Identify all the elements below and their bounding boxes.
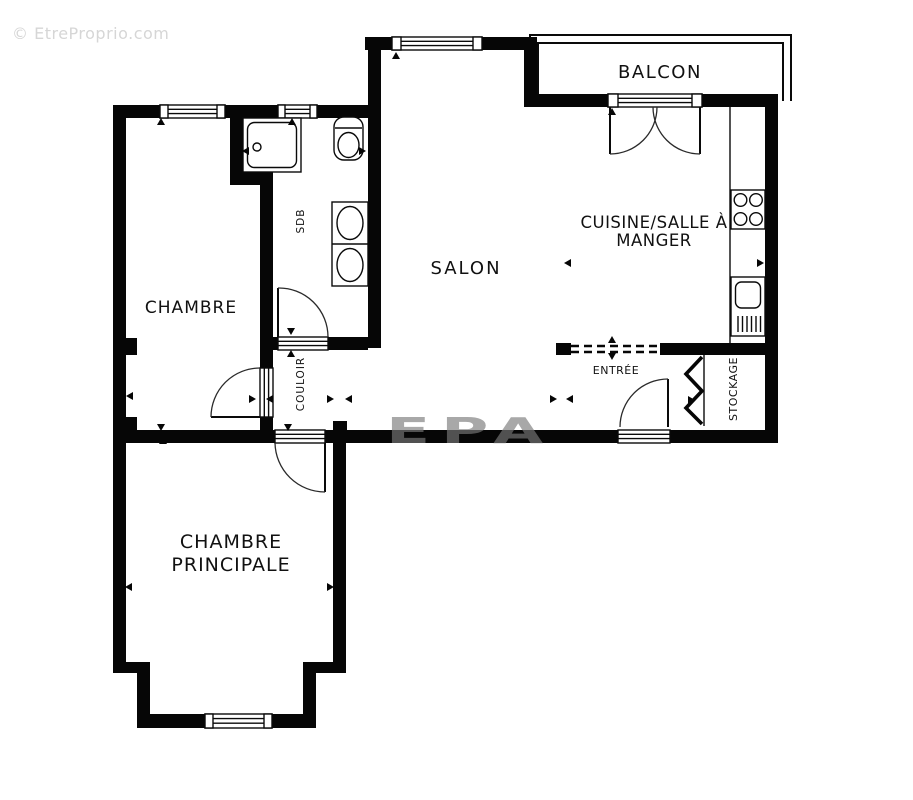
dimension-arrow	[345, 395, 352, 403]
wall-right	[765, 94, 778, 443]
balcon-label: BALCON	[618, 62, 702, 83]
windows	[160, 37, 482, 728]
wall-sdb-bottom-a	[260, 337, 278, 350]
walls	[113, 37, 778, 728]
wall-notch-lower	[126, 417, 137, 430]
dimension-arrow	[608, 336, 616, 343]
wall-top-kitchen-a	[524, 94, 608, 107]
dimension-arrow	[564, 259, 571, 267]
wall-bay-bottom-b	[272, 714, 316, 728]
wall-bay-bottom-a	[137, 714, 205, 728]
dimension-arrow	[157, 118, 165, 125]
center-watermark: EPA	[386, 411, 554, 452]
dimension-arrow	[608, 353, 616, 360]
wall-top-chambre-b	[225, 105, 278, 118]
dimension-arrow	[287, 350, 295, 357]
sdb-door-threshold	[278, 337, 328, 350]
stockage-label: STOCKAGE	[727, 357, 740, 421]
floor-plan: BALCON CUISINE/SALLE À MANGER SALON CHAM…	[0, 0, 913, 800]
wall-bottom-a	[113, 430, 275, 443]
dimension-arrow	[566, 395, 573, 403]
stockage-bifold-door	[686, 355, 704, 426]
chambre-principale-door-threshold	[275, 430, 325, 443]
wall-stub	[333, 421, 347, 430]
wall-sdb-salon	[368, 37, 381, 348]
dimension-arrow	[126, 392, 133, 400]
sdb-door	[278, 288, 328, 337]
wall-chambre-right-upper	[230, 118, 243, 180]
couloir-label: COULOIR	[295, 357, 307, 411]
salon-label: SALON	[430, 258, 501, 279]
floor-plan-image: BALCON CUISINE/SALLE À MANGER SALON CHAM…	[0, 0, 913, 800]
watermarks: © EtreProprio.com EPA	[12, 24, 554, 452]
stove-icon	[731, 190, 765, 229]
dimension-arrow	[249, 395, 256, 403]
kitchen-sink-icon	[731, 277, 765, 336]
sdb-window	[278, 105, 317, 118]
dimension-arrow	[392, 52, 400, 59]
entry-door	[620, 379, 668, 427]
chambre-label: CHAMBRE	[145, 298, 237, 318]
chambre-principale-label-line2: PRINCIPALE	[171, 554, 290, 576]
dimension-arrow	[157, 424, 165, 431]
sdb-label: SDB	[295, 209, 307, 234]
chambre-door	[211, 368, 260, 417]
wall-stockage-top	[660, 343, 765, 355]
wall-step	[230, 172, 273, 185]
wall-bottom-c	[670, 430, 778, 443]
chambre-principale-label-line1: CHAMBRE	[180, 531, 282, 553]
double-washbasin-icon	[332, 202, 368, 286]
chambre-door-threshold	[260, 368, 273, 417]
dimension-arrow	[287, 328, 295, 335]
dimension-arrow	[125, 583, 132, 591]
entree-label: ENTRÉE	[593, 364, 639, 377]
dimension-arrow	[327, 583, 334, 591]
wall-top-chambre-a	[113, 105, 160, 118]
dimension-arrow	[550, 395, 557, 403]
corner-watermark: © EtreProprio.com	[12, 24, 169, 43]
salon-window	[392, 37, 482, 50]
wall-left	[113, 105, 126, 673]
entree-zone-line	[571, 346, 660, 352]
balcony-door-threshold	[608, 94, 702, 107]
chambre-window	[160, 105, 225, 118]
wall-chambre-principale-right	[333, 430, 346, 673]
entree-pillar	[556, 343, 571, 355]
chambre-principale-door	[275, 443, 325, 492]
cuisine-label-line1: CUISINE/SALLE À	[580, 213, 727, 232]
cuisine-label-line2: MANGER	[616, 231, 692, 250]
balcony-french-door	[610, 107, 700, 154]
shower-icon	[243, 118, 301, 172]
toilet-icon	[334, 117, 363, 160]
wall-sdb-bottom-b	[328, 337, 368, 350]
dimension-arrow	[757, 259, 764, 267]
bay-window	[205, 714, 272, 728]
wall-notch-upper	[126, 338, 137, 355]
dimension-arrow	[327, 395, 334, 403]
entry-door-threshold	[618, 430, 670, 443]
